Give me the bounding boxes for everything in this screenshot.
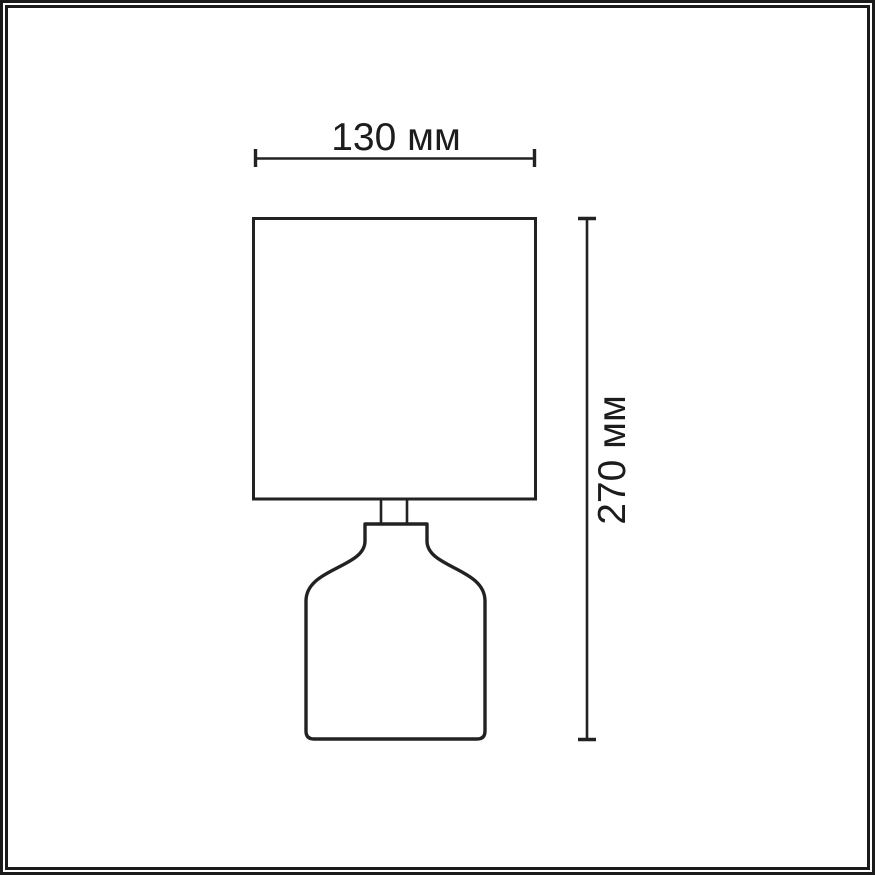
lampshade-outline <box>254 219 536 500</box>
width-dimension-label: 130 мм <box>331 116 461 159</box>
height-dimension-label: 270 мм <box>591 395 634 525</box>
lamp-base-outline <box>306 524 485 739</box>
lamp-neck-outline <box>381 497 407 524</box>
width-dimension: 130 мм <box>255 116 535 167</box>
height-dimension: 270 мм <box>578 218 634 740</box>
diagram-canvas: 130 мм 270 мм <box>0 0 875 875</box>
lamp-dimension-drawing: 130 мм 270 мм <box>0 0 875 875</box>
